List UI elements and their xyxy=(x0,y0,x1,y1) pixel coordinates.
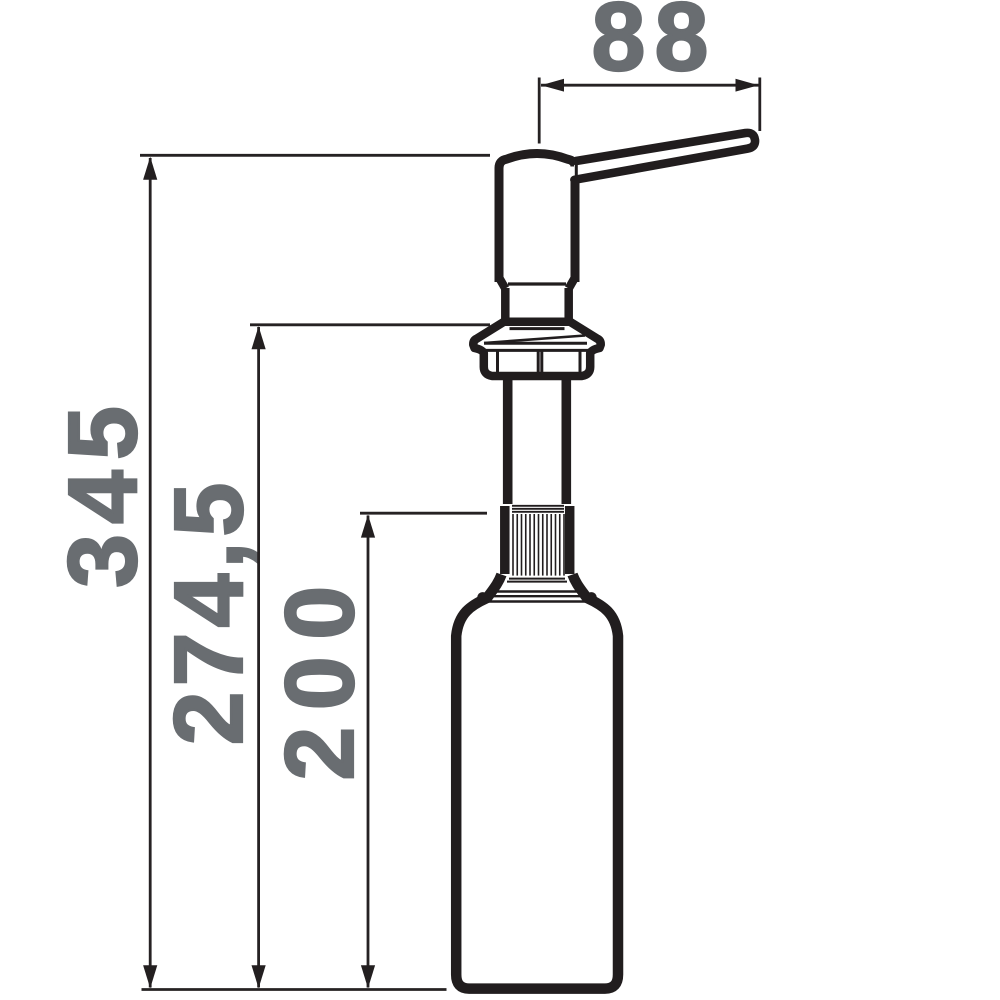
svg-text:274,5: 274,5 xyxy=(154,478,263,746)
svg-text:345: 345 xyxy=(48,396,157,588)
svg-text:200: 200 xyxy=(265,569,374,780)
svg-text:88: 88 xyxy=(592,0,718,91)
